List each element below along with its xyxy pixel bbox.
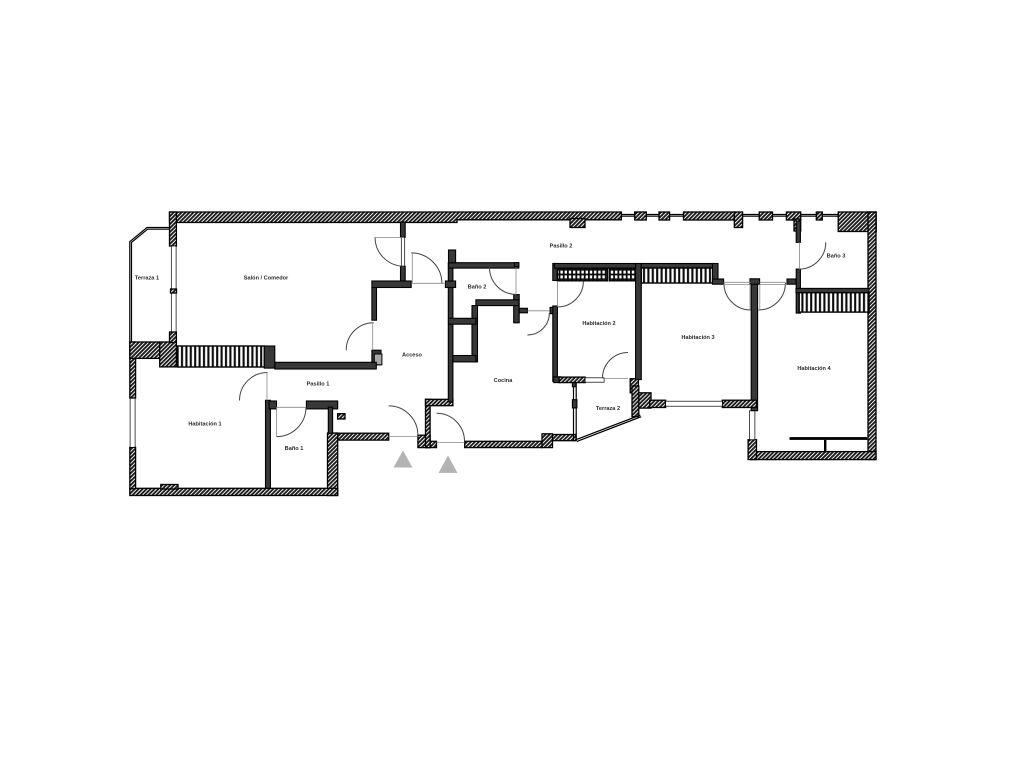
svg-text:Salón / Comedor: Salón / Comedor xyxy=(244,276,289,282)
svg-text:Baño 1: Baño 1 xyxy=(285,446,304,452)
svg-text:Baño 2: Baño 2 xyxy=(468,285,487,291)
svg-text:Terraza 2: Terraza 2 xyxy=(596,406,620,412)
svg-text:Baño 3: Baño 3 xyxy=(827,254,846,260)
svg-text:Habitación 4: Habitación 4 xyxy=(797,366,831,372)
svg-text:Habitación 3: Habitación 3 xyxy=(681,335,714,341)
svg-text:Pasillo 2: Pasillo 2 xyxy=(550,244,573,250)
svg-text:Pasillo 1: Pasillo 1 xyxy=(307,382,330,388)
svg-text:Acceso: Acceso xyxy=(402,353,422,359)
svg-text:Habitación 2: Habitación 2 xyxy=(582,321,615,327)
svg-text:Habitación 1: Habitación 1 xyxy=(188,422,221,428)
svg-text:Terraza 1: Terraza 1 xyxy=(135,276,159,282)
svg-text:Cocina: Cocina xyxy=(494,378,514,384)
